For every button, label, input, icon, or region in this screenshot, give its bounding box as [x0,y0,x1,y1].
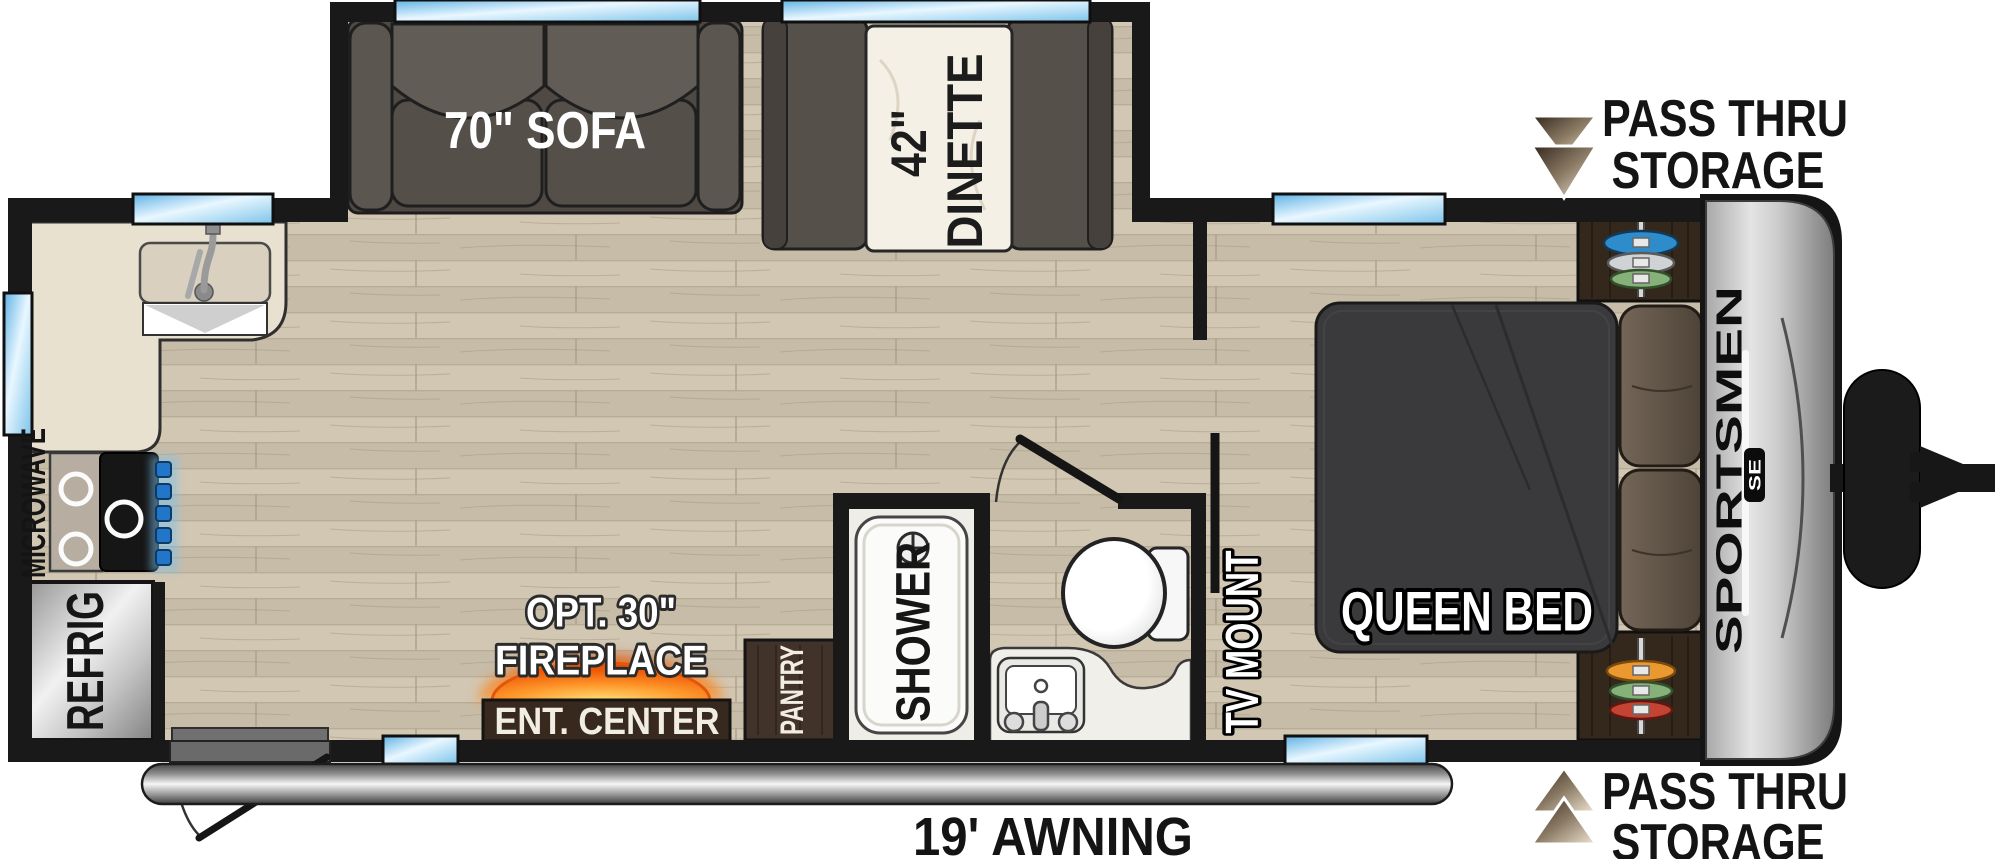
ent-center-label: ENT. CENTER [495,701,720,743]
fireplace-opt-label: OPT. 30" [526,589,676,636]
bath-sink [998,658,1084,732]
window-slideout-left [395,0,700,22]
wardrobe-top [1578,213,1702,301]
jack-wheel [1844,370,1920,588]
shower-wall-left [833,493,849,740]
refrigerator-divider-wall [153,582,165,740]
dinette-label: DINETTE [937,54,993,249]
hitch-coupler [1920,446,1994,508]
awning-label: 19' AWNING [913,807,1193,859]
pass-thru-arrows-bottom [1532,768,1596,844]
pantry-label: PANTRY [774,645,810,735]
queen-bed-label: QUEEN BED [1341,580,1593,643]
window-bedroom-bottom [1285,736,1427,764]
bathroom-wall-right [1191,493,1206,740]
window-bottom-left [383,736,458,764]
coupler-latch [1910,482,1922,502]
sofa-label: 70" SOFA [444,102,646,160]
kitchen-sink-lower-bowl [143,303,267,335]
faucet-handle-icon [1059,713,1077,731]
awning [142,764,1452,804]
dinette-size-label: 42" [881,109,937,177]
shower-wall-right [974,493,990,740]
entry-step [172,728,328,742]
toilet [1063,539,1188,647]
dinette-bench-right-back [1088,18,1112,249]
toilet-bowl [1063,539,1165,647]
faucet-spout-icon [1034,702,1048,730]
window-slideout-right [782,0,1090,22]
sofa-arm-left [350,23,392,210]
brand-badge-label: SE [1746,459,1765,491]
sofa-arm-right [698,23,740,210]
hitch [1830,370,1995,588]
awning-tube [142,764,1452,804]
brand-logo: SPORTSMEN [1709,286,1750,654]
pass-thru-top-line1: PASS THRU [1602,90,1848,148]
pass-thru-top-line2: STORAGE [1612,142,1825,200]
floorplan-canvas: 70" SOFA 42" DINETTE PASS THRU STORAGE Q… [0,0,1999,859]
cooktop-left [50,453,102,571]
fireplace-label: FIREPLACE [495,637,707,684]
bedroom-partition-wall [1193,222,1207,340]
pass-thru-arrows-top [1532,116,1596,198]
faucet-handle-icon [1005,713,1023,731]
arrow-down-icon [1532,146,1596,198]
slideout-wall-right [1132,2,1150,222]
floorplan-svg: 70" SOFA 42" DINETTE PASS THRU STORAGE Q… [0,0,1999,859]
window-kitchen [133,194,273,224]
pass-thru-bottom-line1: PASS THRU [1602,763,1848,821]
shower-label: SHOWER [888,542,941,722]
shower-wall-top [833,493,990,509]
window-bedroom-top [1273,194,1445,224]
window-rear [4,293,32,435]
microwave-label: MICROWAVE [15,428,53,578]
coupler-latch [1910,452,1922,472]
tv-mount-label: TV MOUNT [1216,551,1268,734]
pass-thru-bottom-line2: STORAGE [1612,814,1825,859]
stove-knobs [156,462,171,565]
door-slab [170,741,330,762]
dinette-bench-left-back [763,18,787,249]
slideout-wall-left [330,2,348,222]
refrig-label: REFRIG [57,591,115,731]
